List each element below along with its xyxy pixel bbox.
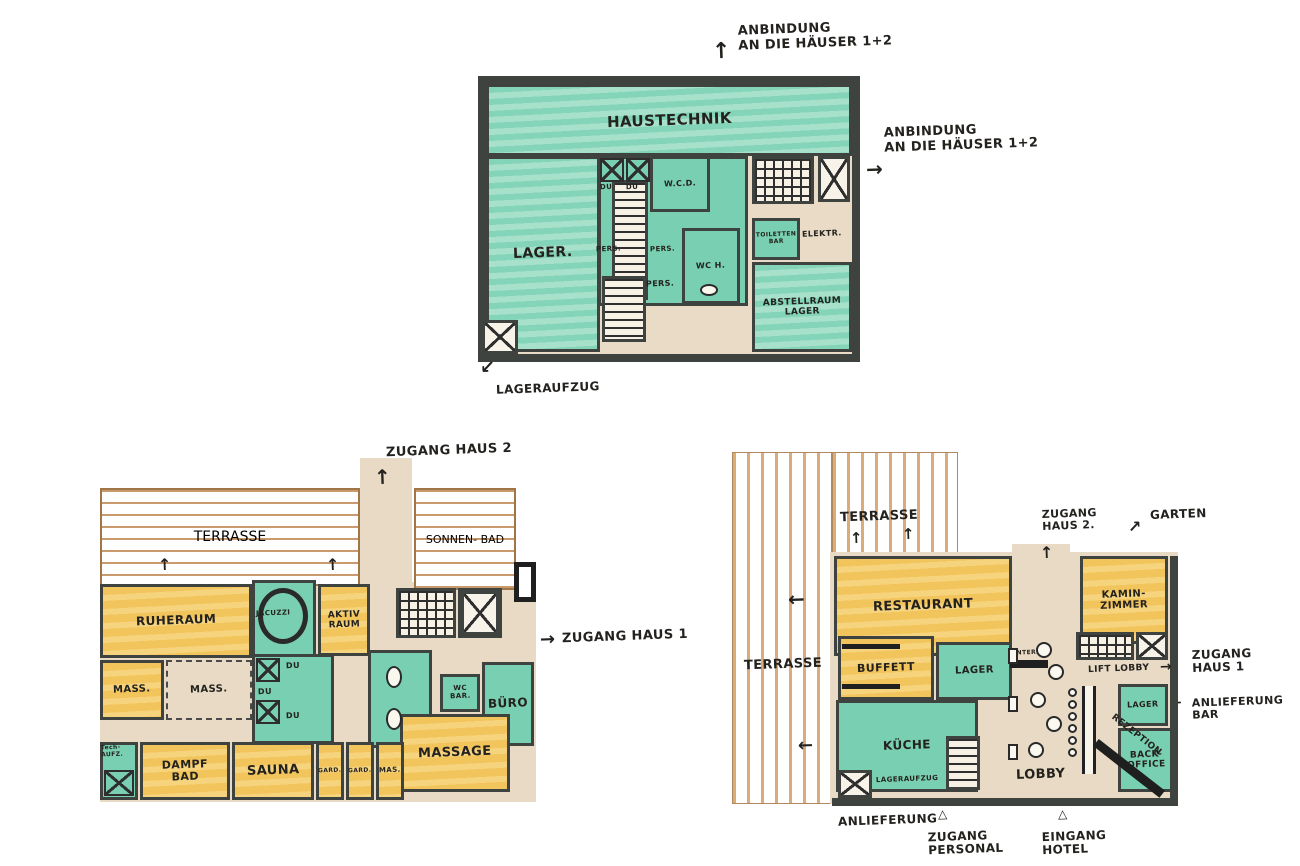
arrow-left-icon: ← (798, 736, 813, 756)
lift-lageraufzug-icon (838, 770, 872, 798)
room-massage-1: MASS. (100, 660, 164, 720)
bar-counter-icon (1082, 686, 1096, 774)
bar-stool-icon (1068, 724, 1077, 733)
shower-stall-icon (626, 158, 650, 182)
stairs-haus2-icon (396, 588, 456, 638)
lounge-chair-icon (1008, 648, 1018, 664)
annotation-eingang-hotel: EINGANG HOTEL (1042, 830, 1107, 857)
annotation-zugang-personal: ZUGANG PERSONAL (928, 830, 1003, 857)
arrow-right-icon: → (1160, 660, 1172, 676)
room-dampfbad: DAMPF BAD (140, 742, 230, 800)
room-sauna: SAUNA (232, 742, 314, 800)
arrow-up-icon: ↑ (158, 556, 172, 574)
room-sonnenbad: SONNEN- BAD (414, 488, 516, 590)
lift-connection-icon (818, 156, 850, 202)
wall-bottom (832, 798, 1178, 806)
bar-stool-icon (1068, 688, 1077, 697)
label-jacuzzi: JACUZZI (256, 610, 290, 618)
annotation-lageraufzug: LAGERAUFZUG (496, 382, 600, 395)
arrow-down-left-icon: ↙ (480, 358, 495, 378)
room-garderobe-2: GARD. (346, 742, 374, 800)
arrow-up-icon: ↑ (850, 530, 863, 547)
annotation-anbindung-oben: ANBINDUNG AN DIE HÄUSER 1+2 (738, 22, 892, 51)
toilet-fixture-icon (386, 708, 402, 730)
arrow-up-icon: ↑ (1040, 544, 1054, 562)
room-kaminzimmer: KAMIN- ZIMMER (1080, 556, 1168, 644)
arrow-up-icon: ↑ (374, 466, 391, 488)
wall-right (1170, 556, 1178, 804)
toilet-fixture-icon (386, 666, 402, 688)
label-du: DU (600, 184, 612, 192)
label-tech-aufz: Tech- AUFZ. (101, 745, 123, 758)
floorplan-sketch-canvas: HAUSTECHNIKLAGER.DUDUW.C.D.PERS.PERS.PER… (0, 0, 1300, 866)
annotation-zugang-haus2: ZUGANG HAUS 2. (1042, 508, 1097, 533)
arrow-up-icon: ↑ (902, 526, 915, 543)
annotation-zugang-haus2: ZUGANG HAUS 2 (386, 444, 512, 459)
table-seating-icon (1036, 642, 1052, 658)
stairs-connection-icon (752, 156, 814, 204)
bar-stool-icon (1068, 736, 1077, 745)
stairs-kueche-icon (946, 736, 980, 790)
arrow-right-icon: → (540, 630, 555, 650)
bar-stool-icon (1068, 748, 1077, 757)
arrow-up-right-icon: ↗ (1128, 518, 1142, 536)
annotation-anlieferung: ANLIEFERUNG (838, 814, 937, 827)
room-wc-bar: WC BAR. (440, 674, 480, 712)
room-terrasse: TERRASSE (100, 488, 360, 586)
room-mas: MAS. (376, 742, 404, 800)
room-aktivraum: AKTIV RAUM (318, 584, 370, 656)
annotation-zugang-haus1: ZUGANG HAUS 1 (1192, 648, 1252, 675)
lift-haus1-icon (1136, 632, 1168, 660)
label-du: DU (258, 688, 272, 697)
triangle-up-icon: △ (938, 808, 948, 821)
table-seating-icon (1046, 716, 1062, 732)
lounge-chair-icon (1008, 744, 1018, 760)
lift-tech-icon (104, 770, 134, 796)
bar-stool-icon (1068, 712, 1077, 721)
shower-stall-icon (600, 158, 624, 182)
label-pers: PERS. (646, 280, 674, 289)
stairs-haus1-icon (1076, 632, 1134, 660)
label-lageraufzug: LAGERAUFZUG (876, 776, 938, 784)
counter-icon (842, 644, 900, 649)
label-lobby: LOBBY (1016, 768, 1065, 783)
terrasse-links (732, 452, 832, 804)
room-wc-damen: W.C.D. (650, 156, 710, 212)
annotation-anlieferung-bar: ANLIEFERUNG BAR (1192, 696, 1283, 721)
counter-icon (842, 684, 900, 689)
arrow-right-icon: → (866, 158, 883, 180)
room-garderobe-1: GARD. (316, 742, 344, 800)
arrow-up-icon: ↑ (712, 40, 731, 65)
lounge-chair-icon (1008, 696, 1018, 712)
label-pers: PERS. (650, 246, 675, 254)
label-lift-lobby: LIFT LOBBY (1088, 664, 1149, 674)
arrow-left-icon: ← (788, 588, 805, 610)
stairs-lower-icon (602, 276, 646, 342)
table-seating-icon (1048, 664, 1064, 680)
label-du: DU (286, 712, 300, 721)
shower-stall-icon (256, 700, 280, 724)
label-terrasse-oben: TERRASSE (840, 510, 918, 525)
lift-lageraufzug-icon (482, 320, 518, 354)
arrow-up-icon: ↑ (326, 556, 340, 574)
label-terrasse-links: TERRASSE (744, 658, 822, 673)
label-elektr: ELEKTR. (802, 230, 842, 239)
bar-stool-icon (1068, 700, 1077, 709)
toilet-fixture-icon (700, 284, 718, 296)
table-seating-icon (1030, 692, 1046, 708)
room-massage-gross: MASSAGE (400, 714, 510, 792)
room-ruheraum: RUHERAUM (100, 584, 252, 658)
triangle-up-icon: △ (1058, 808, 1068, 821)
room-toiletten-bar: TOILETTEN BAR (752, 218, 800, 260)
annotation-anbindung-rechts: ANBINDUNG AN DIE HÄUSER 1+2 (884, 124, 1038, 153)
bench-fixture-icon (514, 562, 536, 602)
label-du: DU (626, 184, 638, 192)
label-du: DU (286, 662, 300, 671)
label-pers: PERS. (596, 246, 621, 254)
room-lager-buffett: LAGER (936, 642, 1012, 700)
room-massage-2: MASS. (166, 660, 252, 720)
shower-stall-icon (256, 658, 280, 682)
room-haustechnik: HAUSTECHNIK (486, 84, 852, 156)
annotation-zugang-haus1: ZUGANG HAUS 1 (562, 630, 688, 645)
room-abstellraum-lager: ABSTELLRAUM LAGER (752, 262, 852, 352)
table-seating-icon (1028, 742, 1044, 758)
lift-haus2-icon (458, 588, 502, 638)
annotation-garten: GARTEN (1150, 508, 1207, 521)
